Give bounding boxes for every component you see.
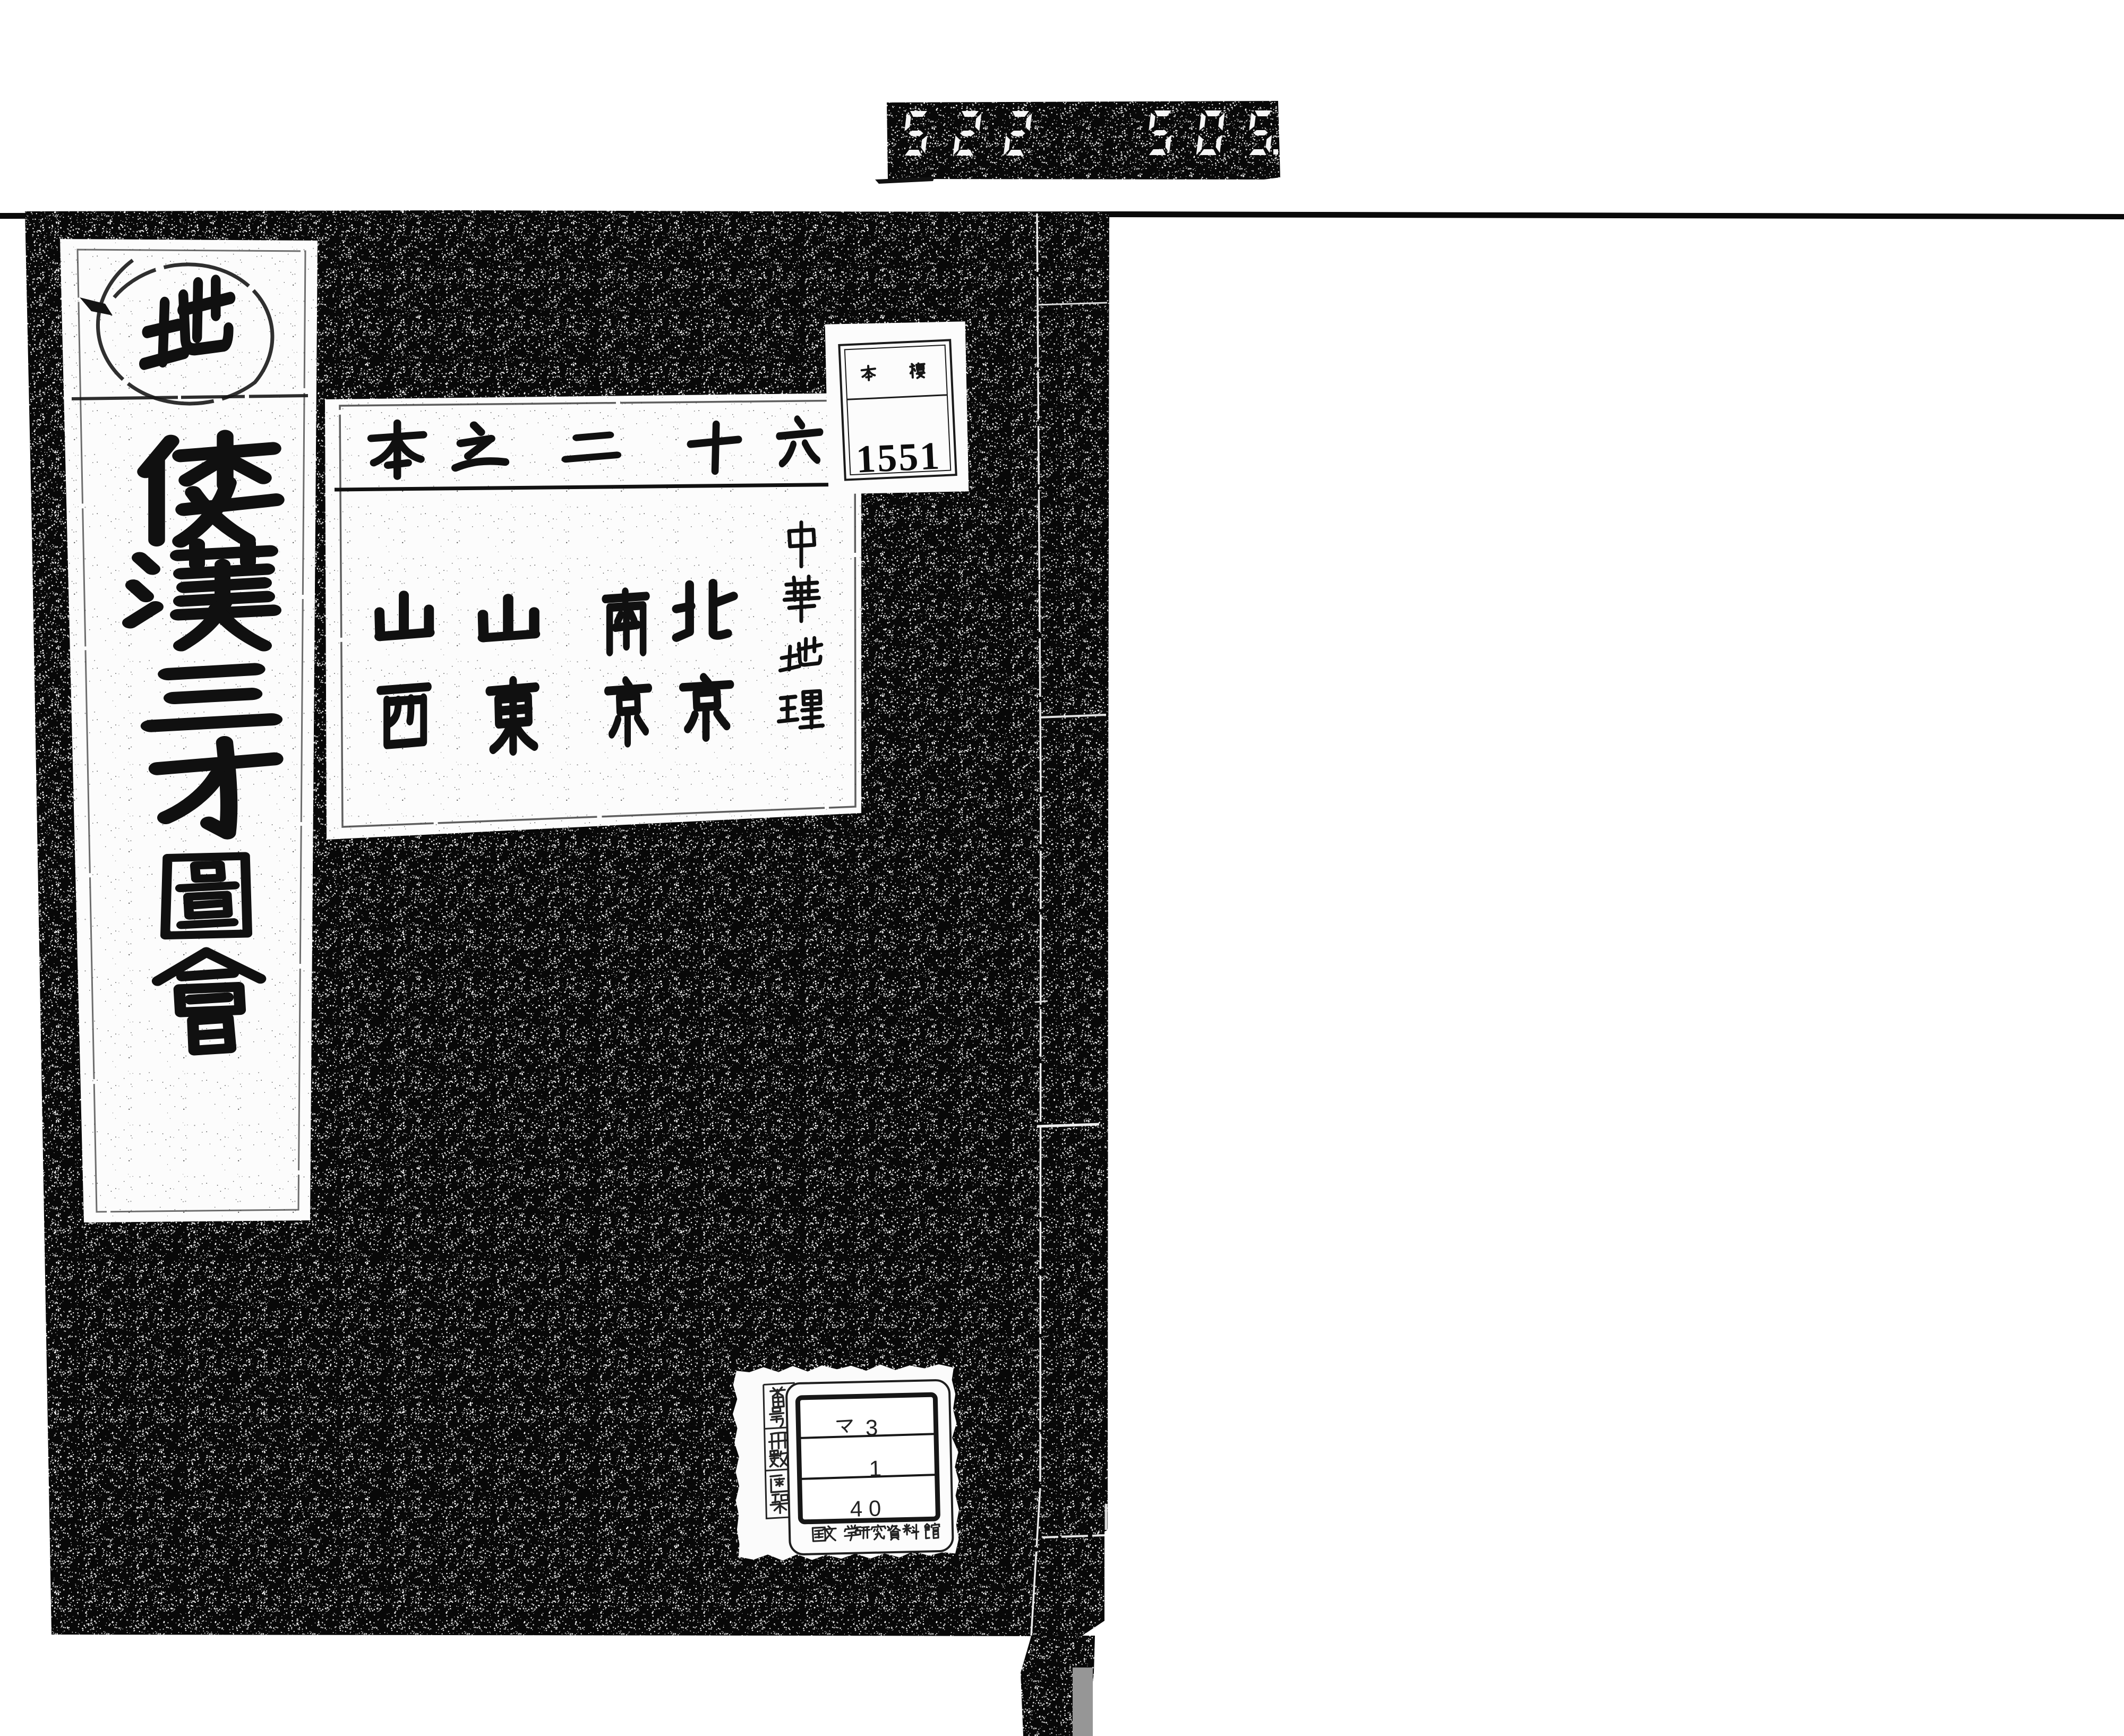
svg-text:1: 1 (869, 1456, 881, 1481)
svg-text:4 0: 4 0 (850, 1496, 881, 1521)
svg-text:1551: 1551 (855, 434, 942, 481)
svg-text:3: 3 (865, 1415, 878, 1441)
